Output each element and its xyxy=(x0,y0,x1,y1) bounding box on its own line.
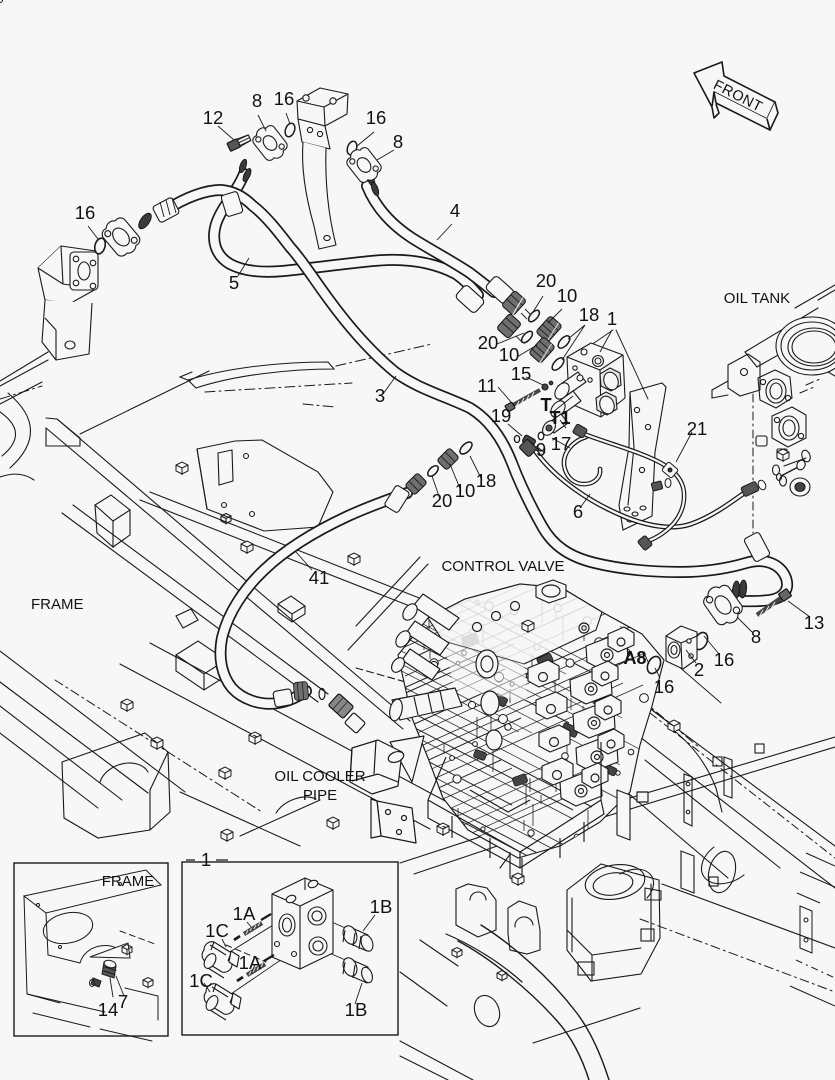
svg-text:T1: T1 xyxy=(549,408,570,428)
svg-text:16: 16 xyxy=(366,107,387,128)
svg-text:20: 20 xyxy=(432,490,453,511)
svg-text:9: 9 xyxy=(536,439,546,460)
svg-text:10: 10 xyxy=(557,285,578,306)
svg-text:FRAME: FRAME xyxy=(102,873,155,890)
svg-text:19: 19 xyxy=(491,405,512,426)
svg-text:3: 3 xyxy=(375,385,385,406)
svg-text:8: 8 xyxy=(393,131,403,152)
svg-text:FRAME: FRAME xyxy=(31,596,84,613)
svg-text:18: 18 xyxy=(579,304,600,325)
svg-text:8: 8 xyxy=(252,90,262,111)
svg-text:2: 2 xyxy=(694,659,704,680)
svg-text:A8: A8 xyxy=(623,648,646,668)
svg-text:5: 5 xyxy=(229,272,239,293)
svg-text:1B: 1B xyxy=(345,999,368,1020)
svg-text:13: 13 xyxy=(804,612,825,633)
svg-text:14: 14 xyxy=(98,999,119,1020)
svg-text:1B: 1B xyxy=(370,896,393,917)
svg-text:16: 16 xyxy=(75,202,96,223)
svg-text:16: 16 xyxy=(654,676,675,697)
svg-text:12: 12 xyxy=(203,107,224,128)
svg-text:20: 20 xyxy=(478,332,499,353)
svg-text:10: 10 xyxy=(499,344,520,365)
svg-text:OIL TANK: OIL TANK xyxy=(724,290,790,307)
svg-text:1A: 1A xyxy=(233,903,256,924)
svg-text:41: 41 xyxy=(309,567,330,588)
svg-text:7: 7 xyxy=(118,991,128,1012)
svg-text:1C: 1C xyxy=(189,970,213,991)
svg-text:OIL COOLER: OIL COOLER xyxy=(274,768,365,785)
svg-text:PIPE: PIPE xyxy=(303,787,337,804)
svg-text:4: 4 xyxy=(450,200,460,221)
svg-text:21: 21 xyxy=(687,418,708,439)
svg-text:1A: 1A xyxy=(239,952,262,973)
svg-text:6: 6 xyxy=(573,501,583,522)
svg-text:CONTROL VALVE: CONTROL VALVE xyxy=(441,558,564,575)
svg-text:8: 8 xyxy=(751,626,761,647)
svg-text:18: 18 xyxy=(476,470,497,491)
svg-text:1C: 1C xyxy=(205,920,229,941)
svg-text:17: 17 xyxy=(551,433,572,454)
svg-text:10: 10 xyxy=(455,480,476,501)
svg-text:20: 20 xyxy=(536,270,557,291)
svg-text:16: 16 xyxy=(274,88,295,109)
svg-text:16: 16 xyxy=(714,649,735,670)
svg-text:1: 1 xyxy=(201,849,211,870)
svg-text:15: 15 xyxy=(511,363,532,384)
svg-text:11: 11 xyxy=(477,375,496,396)
svg-text:1: 1 xyxy=(607,308,617,329)
